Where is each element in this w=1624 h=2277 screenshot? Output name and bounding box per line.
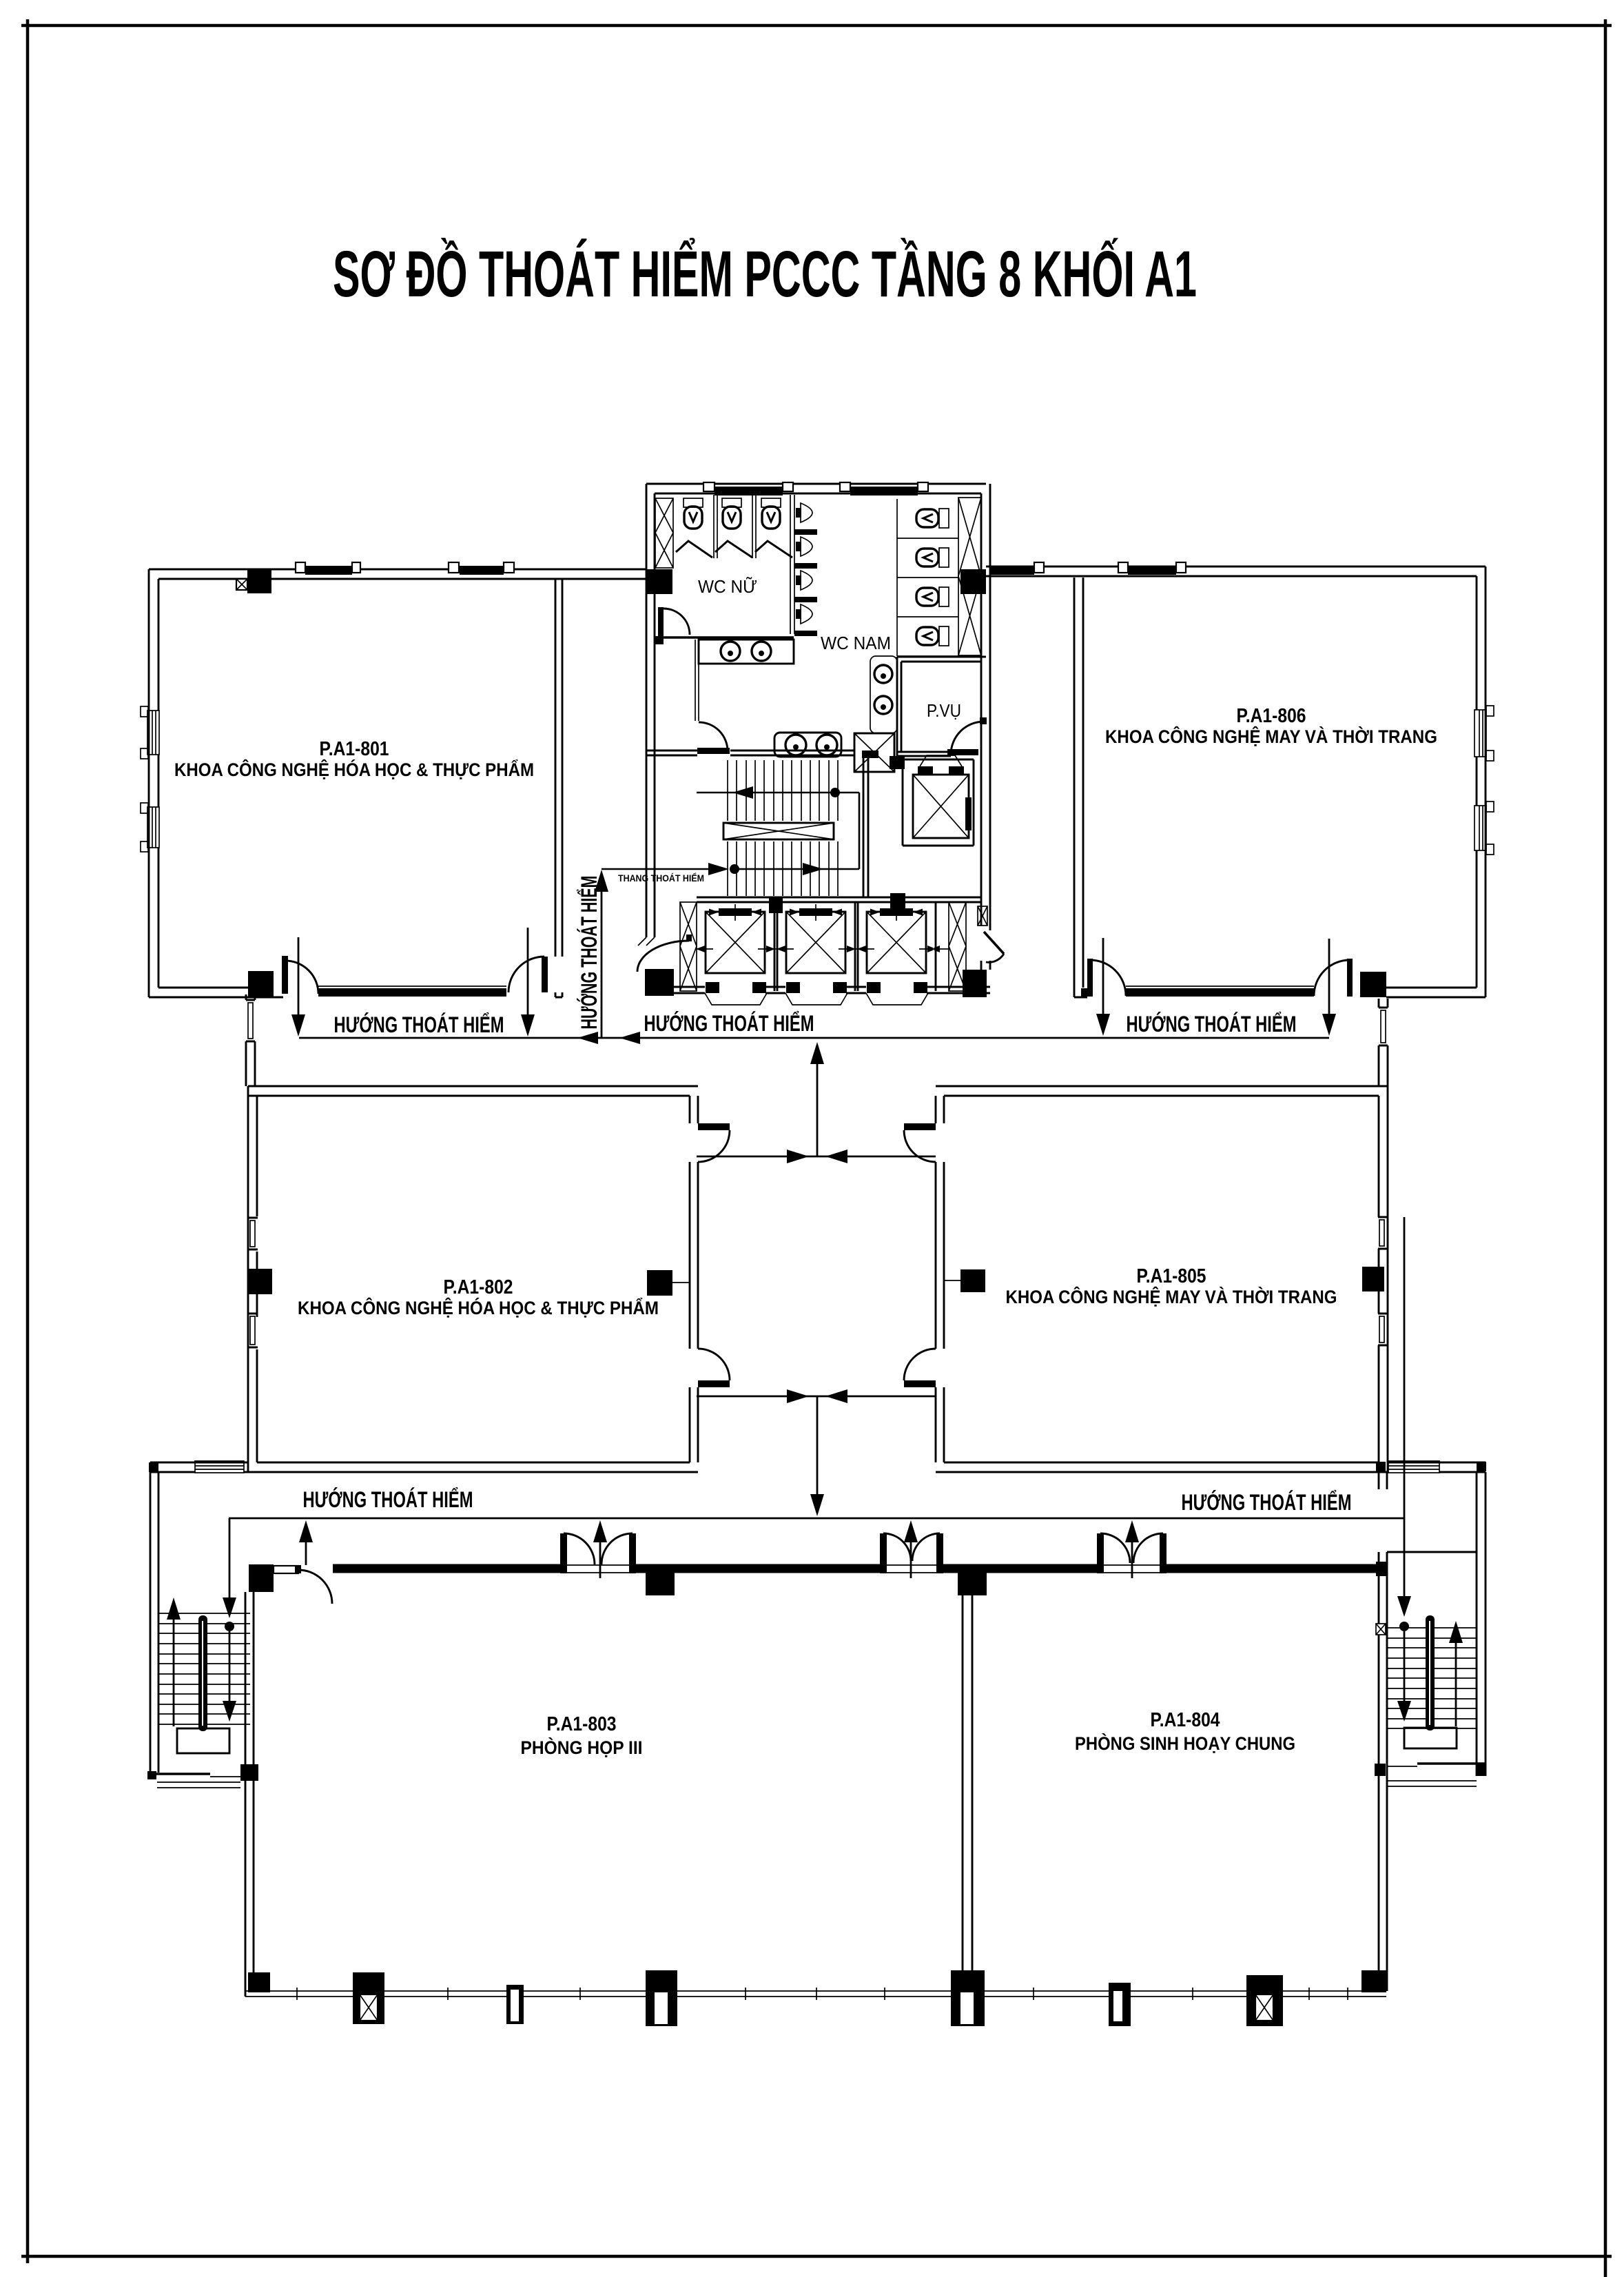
svg-text:P.A1-801: P.A1-801 <box>320 738 389 760</box>
svg-text:HƯỚNG THOÁT HIỂM: HƯỚNG THOÁT HIỂM <box>1127 1012 1297 1037</box>
svg-text:KHOA CÔNG NGHỆ HÓA HỌC & THỰC: KHOA CÔNG NGHỆ HÓA HỌC & THỰC PHẨM <box>174 759 534 780</box>
svg-text:THANG THOÁT HIỂM: THANG THOÁT HIỂM <box>618 872 704 884</box>
svg-text:P.A1-804: P.A1-804 <box>1151 1709 1220 1731</box>
svg-text:KHOA CÔNG NGHỆ MAY VÀ THỜI TRA: KHOA CÔNG NGHỆ MAY VÀ THỜI TRANG <box>1006 1286 1337 1307</box>
svg-text:PHÒNG SINH HOẠY CHUNG: PHÒNG SINH HOẠY CHUNG <box>1075 1733 1295 1754</box>
svg-text:WC NỮ: WC NỮ <box>698 576 757 597</box>
svg-text:HƯỚNG THOÁT HIỂM: HƯỚNG THOÁT HIỂM <box>644 1011 814 1036</box>
svg-text:HƯỚNG THOÁT HIỂM: HƯỚNG THOÁT HIỂM <box>577 876 602 1030</box>
svg-text:P.A1-805: P.A1-805 <box>1137 1265 1206 1287</box>
svg-text:HƯỚNG THOÁT HIỂM: HƯỚNG THOÁT HIỂM <box>334 1012 504 1037</box>
svg-text:PHÒNG HỌP III: PHÒNG HỌP III <box>521 1737 643 1758</box>
svg-text:HƯỚNG THOÁT HIỂM: HƯỚNG THOÁT HIỂM <box>1182 1490 1352 1515</box>
svg-text:WC NAM: WC NAM <box>821 633 891 653</box>
svg-text:KHOA CÔNG NGHỆ MAY VÀ THỜI TRA: KHOA CÔNG NGHỆ MAY VÀ THỜI TRANG <box>1105 726 1437 747</box>
svg-text:P.A1-802: P.A1-802 <box>444 1276 513 1298</box>
svg-text:HƯỚNG THOÁT HIỂM: HƯỚNG THOÁT HIỂM <box>303 1487 473 1512</box>
svg-text:KHOA CÔNG NGHỆ HÓA HỌC & THỰC: KHOA CÔNG NGHỆ HÓA HỌC & THỰC PHẨM <box>298 1297 659 1318</box>
svg-text:P.VỤ: P.VỤ <box>927 700 961 721</box>
svg-text:SƠ ĐỒ THOÁT HIỂM PCCC TẦNG 8 K: SƠ ĐỒ THOÁT HIỂM PCCC TẦNG 8 KHỐI A1 <box>333 238 1197 311</box>
svg-text:P.A1-806: P.A1-806 <box>1237 705 1306 727</box>
svg-text:P.A1-803: P.A1-803 <box>547 1713 617 1735</box>
